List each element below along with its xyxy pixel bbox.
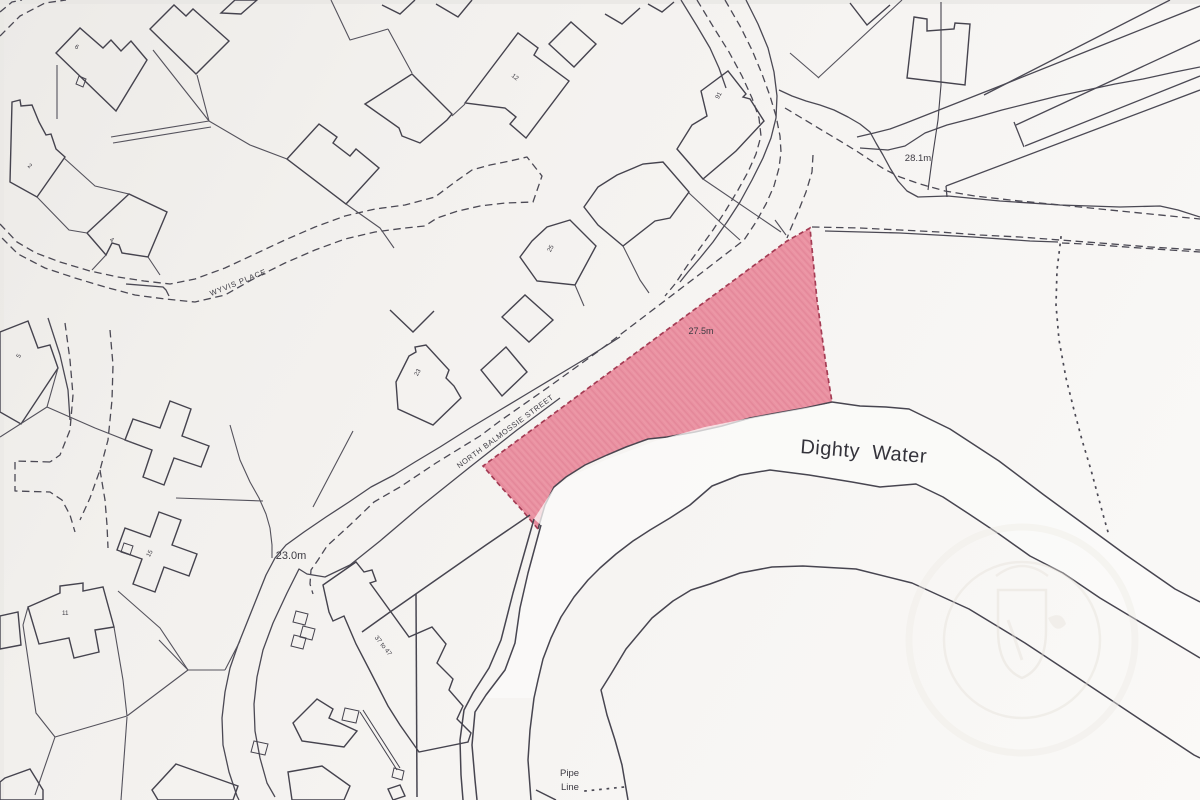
svg-text:11: 11 bbox=[62, 610, 69, 617]
svg-text:12: 12 bbox=[510, 72, 520, 82]
svg-text:WYVIS PLACE: WYVIS PLACE bbox=[209, 267, 268, 298]
svg-text:37 to 47: 37 to 47 bbox=[373, 635, 393, 658]
svg-text:Pipe: Pipe bbox=[560, 768, 579, 779]
svg-text:23: 23 bbox=[413, 367, 423, 377]
svg-text:23.0m: 23.0m bbox=[276, 550, 307, 562]
svg-text:28.1m: 28.1m bbox=[905, 153, 931, 164]
svg-text:6: 6 bbox=[73, 43, 80, 51]
svg-text:91: 91 bbox=[714, 90, 724, 100]
svg-text:15: 15 bbox=[145, 548, 155, 558]
svg-text:Line: Line bbox=[561, 782, 579, 793]
svg-text:2: 2 bbox=[26, 162, 33, 170]
svg-text:27.5m: 27.5m bbox=[688, 326, 713, 336]
svg-text:25: 25 bbox=[546, 243, 556, 253]
svg-text:5: 5 bbox=[15, 353, 23, 360]
